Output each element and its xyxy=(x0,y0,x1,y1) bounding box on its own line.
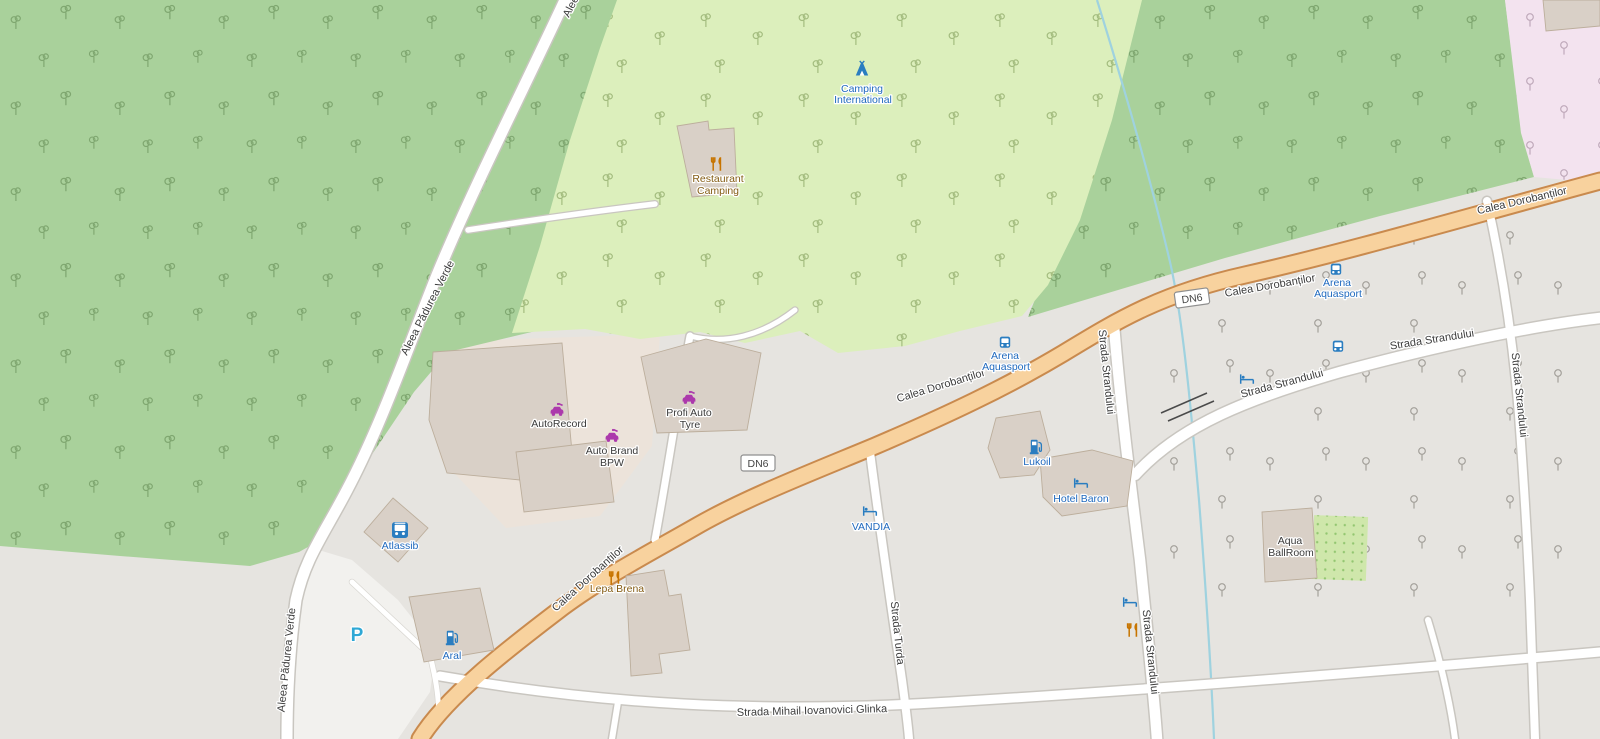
poi-aqua-ballroom-line1[interactable]: Aqua xyxy=(1278,535,1303,547)
poi-arena-aquasport-line2[interactable]: Aquasport xyxy=(1314,288,1362,300)
building-northeast xyxy=(1543,0,1600,31)
bus-stop-icon[interactable] xyxy=(1333,341,1343,352)
poi-aral[interactable]: Aral xyxy=(443,650,462,662)
poi-autorecord[interactable]: AutoRecord xyxy=(531,418,587,430)
route-shield-dn6-south: DN6 xyxy=(741,455,775,471)
poi-camping-international-line2[interactable]: International xyxy=(834,94,892,106)
bus-stop-icon[interactable] xyxy=(1331,264,1341,275)
poi-atlassib[interactable]: Atlassib xyxy=(382,540,419,552)
poi-vandia[interactable]: VANDIA xyxy=(852,521,890,533)
poi-profi-auto-line1[interactable]: Profi Auto xyxy=(666,407,712,419)
poi-hotel-baron[interactable]: Hotel Baron xyxy=(1053,493,1109,505)
poi-lukoil[interactable]: Lukoil xyxy=(1023,456,1050,468)
poi-aqua-ballroom-line2[interactable]: BallRoom xyxy=(1268,547,1314,559)
route-ref: DN6 xyxy=(747,458,768,470)
poi-auto-brand-line2[interactable]: BPW xyxy=(600,457,624,469)
map-canvas[interactable]: DN6 DN6 Calea Dorobanților Calea Doroban… xyxy=(0,0,1600,739)
poi-arena-aquasport-line2[interactable]: Aquasport xyxy=(982,361,1030,373)
bus-station-icon[interactable] xyxy=(392,522,408,538)
nursery-area xyxy=(1312,515,1368,581)
poi-restaurant-camping-line1[interactable]: Restaurant xyxy=(692,173,743,185)
poi-restaurant-camping-line2[interactable]: Camping xyxy=(697,185,739,197)
poi-profi-auto-line2[interactable]: Tyre xyxy=(680,419,701,431)
poi-lepa-brena[interactable]: Lepa Brena xyxy=(590,583,644,595)
bus-stop-icon[interactable] xyxy=(1000,337,1010,348)
poi-auto-brand-line1[interactable]: Auto Brand xyxy=(586,445,639,457)
map-svg[interactable]: DN6 DN6 Calea Dorobanților Calea Doroban… xyxy=(0,0,1600,739)
parking-icon[interactable]: P xyxy=(351,625,364,646)
